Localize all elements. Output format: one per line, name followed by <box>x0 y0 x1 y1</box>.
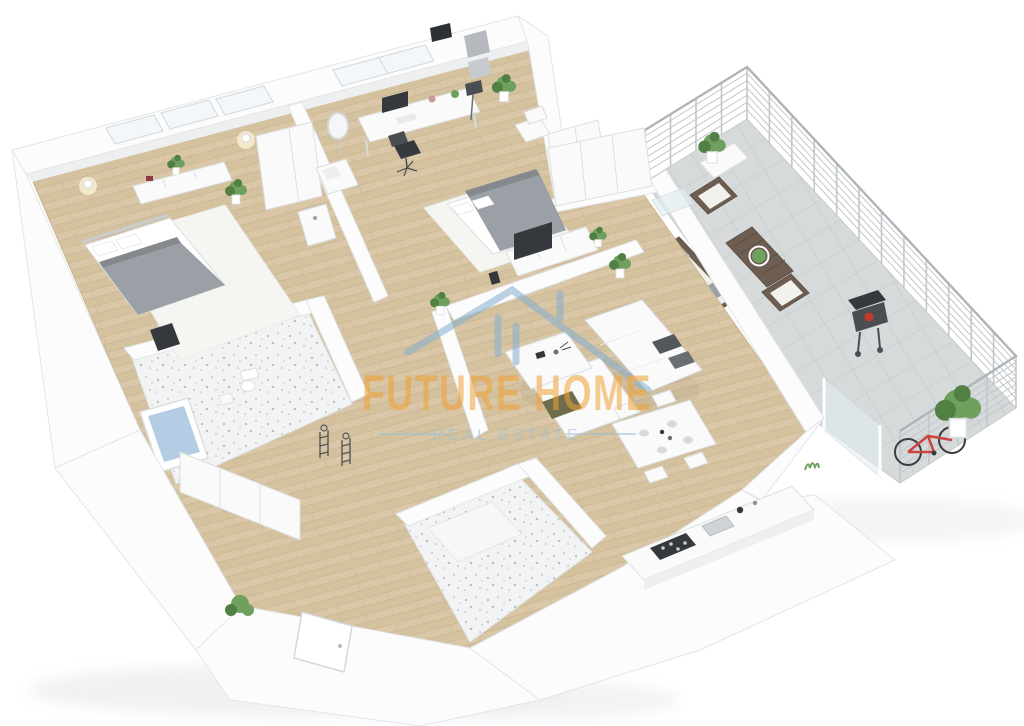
floorplan-render: FUTURE HOME REAL ESTATE <box>0 0 1024 726</box>
wall-lamp-left <box>79 177 97 195</box>
wall-lamp-right <box>237 131 255 149</box>
wardrobe <box>256 122 322 210</box>
watermark-subtitle: REAL ESTATE <box>432 427 582 444</box>
grass-tuft <box>805 463 819 470</box>
watermark-title: FUTURE HOME <box>362 365 652 421</box>
desk-lamp <box>429 96 436 103</box>
kettle <box>737 507 743 513</box>
desk-plant <box>451 90 459 98</box>
decor-box <box>146 176 153 181</box>
